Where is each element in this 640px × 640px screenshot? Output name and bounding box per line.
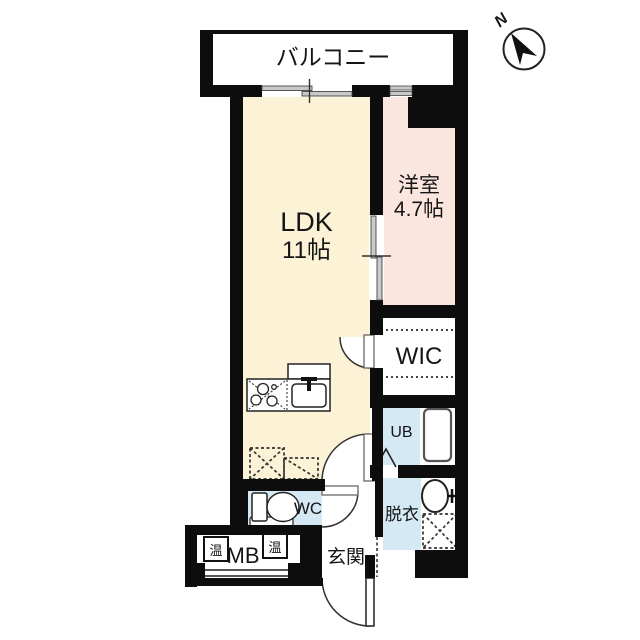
compass-north-label: N (492, 10, 512, 31)
bottom-wall-left (185, 578, 323, 586)
wic-left-wall-a (370, 318, 383, 335)
balcony-left-wall (200, 30, 213, 97)
corner-pillar (408, 97, 455, 128)
balcony-top-wall (200, 30, 466, 34)
bottom-right-block (415, 550, 468, 578)
western-room-label: 洋室 (383, 174, 455, 197)
bath-bottom-wall-a (370, 465, 375, 478)
ldk-label: LDK (243, 208, 370, 238)
bathtub-area (420, 403, 455, 465)
right-wall (455, 85, 468, 578)
unit-bath-label: UB (383, 424, 420, 442)
wic-label: WIC (383, 344, 455, 370)
water-heater-right-label: 温 (268, 537, 281, 556)
west-room-window-icon (390, 85, 412, 97)
left-wall (230, 85, 243, 535)
top-wall-c (412, 85, 455, 97)
wc-door (322, 486, 358, 527)
toilet-label: WC (293, 500, 323, 519)
western-room-size-label: 4.7帖 (383, 198, 455, 221)
ldk-size-label: 11帖 (243, 238, 370, 264)
meter-box-door-lines (205, 570, 288, 576)
balcony-label: バルコニー (233, 45, 433, 70)
top-wall-b (352, 85, 390, 97)
entrance-door (322, 578, 374, 626)
entrance-label: 玄関 (321, 548, 371, 569)
bath-bottom-wall-b (398, 465, 468, 478)
ldk-bottom-wall (230, 479, 325, 491)
ldk-west-room-wall-upper (370, 97, 383, 215)
compass-icon (504, 29, 545, 70)
floor-plan: N バルコニー LDK 11帖 洋室 4.7帖 WIC UB WC 脱衣 玄関 … (0, 0, 640, 640)
water-heater-left-label: 温 (209, 540, 222, 559)
wic-left-wall-b (370, 368, 383, 395)
water-heater-right: 温 (262, 533, 288, 559)
dressing-room-label: 脱衣 (382, 506, 422, 525)
washbasin-area (421, 478, 455, 513)
water-heater-left: 温 (203, 536, 229, 562)
west-room-bottom-wall (370, 305, 468, 318)
washer-area (421, 513, 455, 550)
wic-bottom-wall (370, 395, 468, 408)
ldk-floor (243, 97, 370, 479)
